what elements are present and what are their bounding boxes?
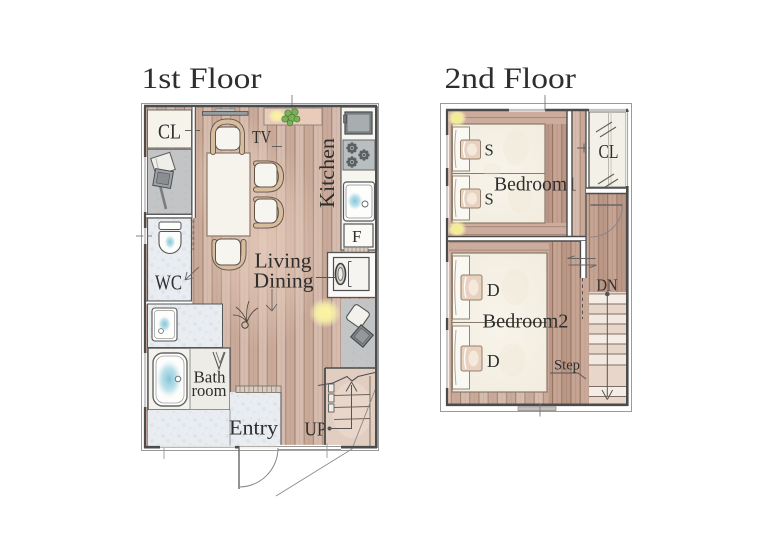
svg-text:F: F: [352, 227, 361, 246]
svg-text:D: D: [487, 280, 500, 300]
svg-text:S: S: [485, 141, 494, 160]
svg-text:D: D: [487, 351, 500, 371]
svg-text:CL: CL: [158, 120, 181, 144]
svg-text:Entry: Entry: [229, 416, 278, 440]
svg-text:TV: TV: [252, 127, 271, 147]
svg-text:S: S: [485, 190, 494, 209]
svg-text:2nd Floor: 2nd Floor: [445, 63, 577, 95]
svg-text:DN: DN: [597, 276, 618, 295]
svg-text:1st Floor: 1st Floor: [142, 63, 262, 95]
svg-text:Kitchen: Kitchen: [315, 137, 339, 208]
svg-text:Step: Step: [554, 358, 580, 374]
svg-text:Bedroom2: Bedroom2: [483, 311, 569, 333]
svg-text:WC: WC: [155, 271, 182, 295]
svg-text:room: room: [192, 381, 227, 400]
svg-text:UP: UP: [305, 419, 327, 441]
svg-text:Bedroom1: Bedroom1: [494, 174, 577, 196]
svg-text:Dining: Dining: [254, 269, 315, 293]
svg-text:CL: CL: [599, 141, 619, 163]
